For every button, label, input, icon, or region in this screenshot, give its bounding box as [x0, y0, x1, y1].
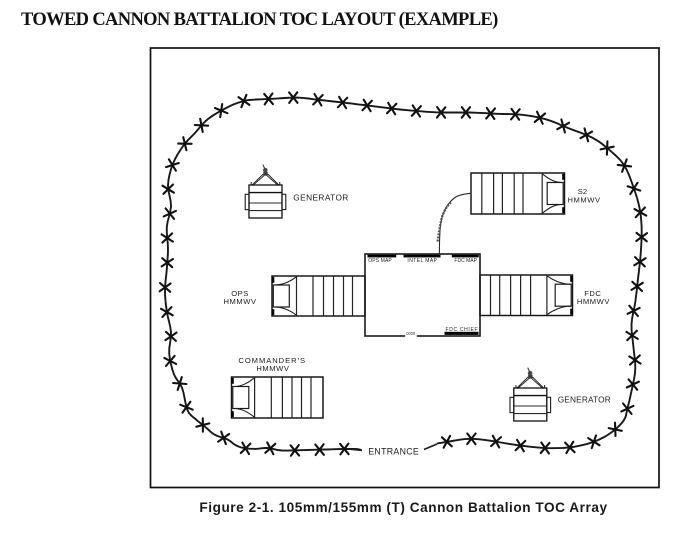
svg-text:DOOR: DOOR: [406, 331, 415, 336]
svg-text:HMMWV: HMMWV: [577, 297, 611, 306]
svg-text:HMMWV: HMMWV: [567, 195, 601, 204]
svg-text:GENERATOR: GENERATOR: [293, 192, 348, 202]
svg-text:TOWED CANNON BATTALION TOC LAY: TOWED CANNON BATTALION TOC LAYOUT (EXAMP…: [21, 10, 498, 30]
svg-text:GENERATOR: GENERATOR: [558, 395, 611, 405]
svg-text:OPS MAP: OPS MAP: [368, 258, 392, 264]
svg-text:INTEL MAP: INTEL MAP: [407, 258, 437, 264]
svg-text:ENTRANCE: ENTRANCE: [368, 447, 419, 457]
svg-text:FDC MAP: FDC MAP: [454, 258, 477, 264]
svg-text:HMMWV: HMMWV: [256, 364, 290, 373]
svg-text:Figure 2-1. 105mm/155mm (T) Ca: Figure 2-1. 105mm/155mm (T) Cannon Batta…: [199, 500, 607, 515]
svg-text:HMMWV: HMMWV: [223, 297, 257, 306]
svg-text:FDC CHIEF: FDC CHIEF: [446, 327, 478, 333]
